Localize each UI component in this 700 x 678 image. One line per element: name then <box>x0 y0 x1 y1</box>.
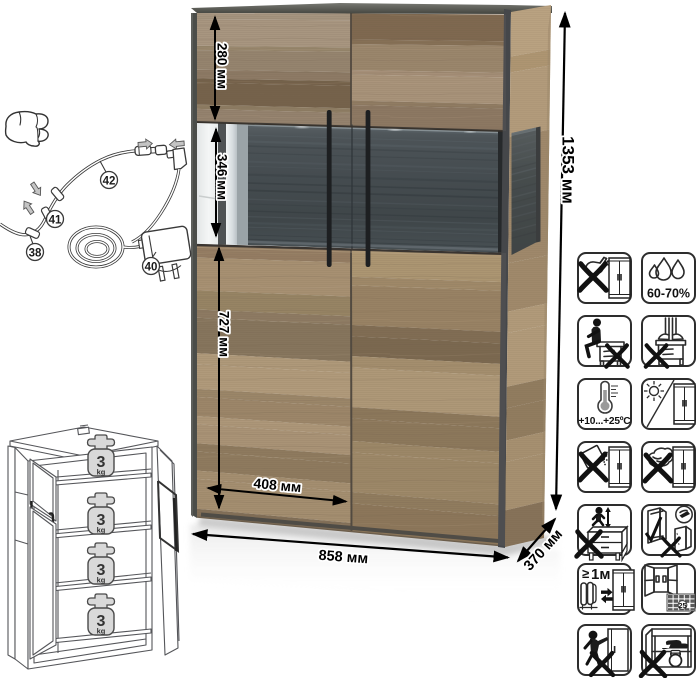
svg-text:280 мм: 280 мм <box>215 43 230 89</box>
svg-text:38: 38 <box>29 248 42 260</box>
svg-text:kg: kg <box>97 526 106 535</box>
svg-text:1353 мм: 1353 мм <box>559 136 578 204</box>
svg-text:1м: 1м <box>591 566 610 583</box>
svg-text:25: 25 <box>678 601 686 610</box>
svg-text:727 мм: 727 мм <box>217 311 232 357</box>
svg-text:41: 41 <box>49 215 62 227</box>
svg-text:≥: ≥ <box>582 566 589 581</box>
svg-text:kg: kg <box>97 627 106 636</box>
svg-text:40: 40 <box>145 262 158 274</box>
svg-text:346 мм: 346 мм <box>215 154 230 200</box>
svg-text:kg: kg <box>97 468 106 477</box>
svg-text:+10...+25ºC: +10...+25ºC <box>579 416 632 427</box>
svg-text:42: 42 <box>103 176 116 188</box>
svg-text:kg: kg <box>97 576 106 585</box>
svg-text:60-70%: 60-70% <box>647 287 690 301</box>
